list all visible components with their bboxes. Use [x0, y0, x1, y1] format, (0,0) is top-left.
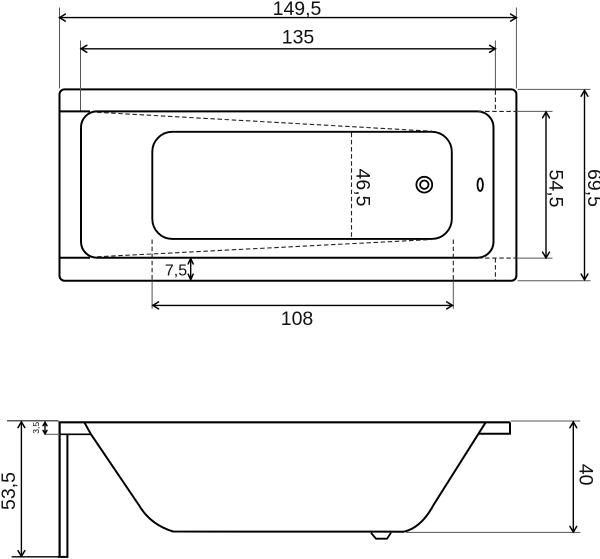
- svg-text:108: 108: [281, 308, 314, 330]
- svg-text:53,5: 53,5: [0, 472, 20, 510]
- svg-text:46,5: 46,5: [352, 169, 374, 207]
- svg-text:3,5: 3,5: [31, 422, 41, 434]
- svg-text:69,5: 69,5: [583, 169, 600, 207]
- svg-text:7,5: 7,5: [165, 262, 187, 279]
- svg-text:40: 40: [574, 464, 596, 486]
- svg-text:54,5: 54,5: [545, 170, 567, 208]
- svg-text:149,5: 149,5: [273, 0, 322, 20]
- svg-text:135: 135: [282, 26, 315, 48]
